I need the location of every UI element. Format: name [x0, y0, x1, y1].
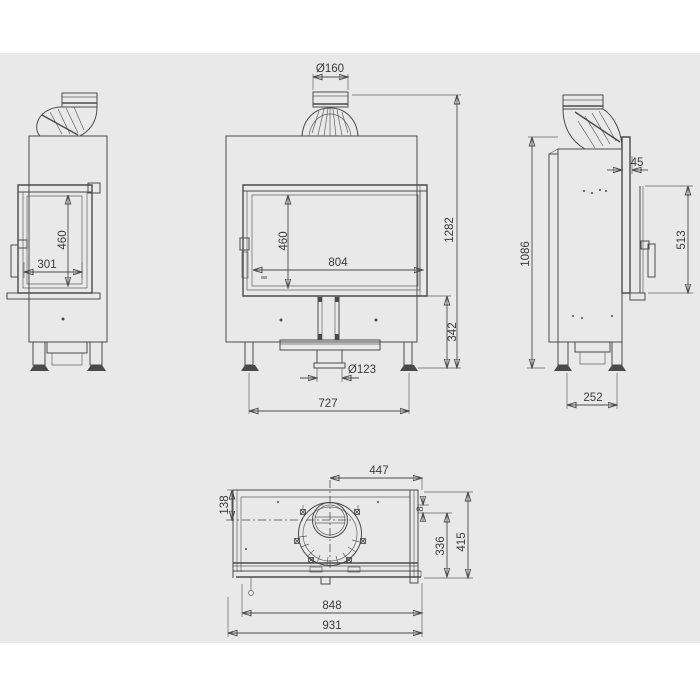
dim-top-flue-from-right: 447: [369, 465, 388, 477]
dim-left-glass-width: 301: [37, 259, 56, 271]
dim-front-glass-width: 804: [328, 257, 348, 269]
drawing-canvas: [0, 53, 700, 643]
technical-drawing-page: 460 301: [0, 0, 700, 700]
technical-drawing-svg: 460 301: [0, 0, 700, 700]
dim-front-feet-span: 727: [318, 398, 337, 410]
dim-top-total-width: 931: [322, 620, 341, 632]
dim-left-glass-height: 460: [57, 230, 69, 249]
dim-top-glass-offset: 8: [415, 506, 426, 511]
dim-front-glass-height: 460: [278, 231, 290, 250]
dim-right-body-height: 1086: [520, 241, 532, 267]
dim-top-side-depth: 336: [435, 536, 447, 555]
dim-top-total-depth: 415: [456, 532, 468, 551]
dim-front-total-height: 1282: [444, 217, 456, 243]
dim-top-flue-from-back: 138: [219, 495, 231, 514]
dim-top-glass-width: 848: [322, 600, 341, 612]
dim-right-door-frame-depth: 45: [631, 157, 644, 169]
dim-right-door-height: 513: [676, 230, 688, 249]
dim-front-flue-diameter: Ø160: [316, 63, 344, 75]
dim-front-air-inlet: Ø123: [348, 364, 376, 376]
dim-right-feet-span: 252: [583, 392, 602, 404]
dim-front-base-height: 342: [447, 322, 459, 341]
